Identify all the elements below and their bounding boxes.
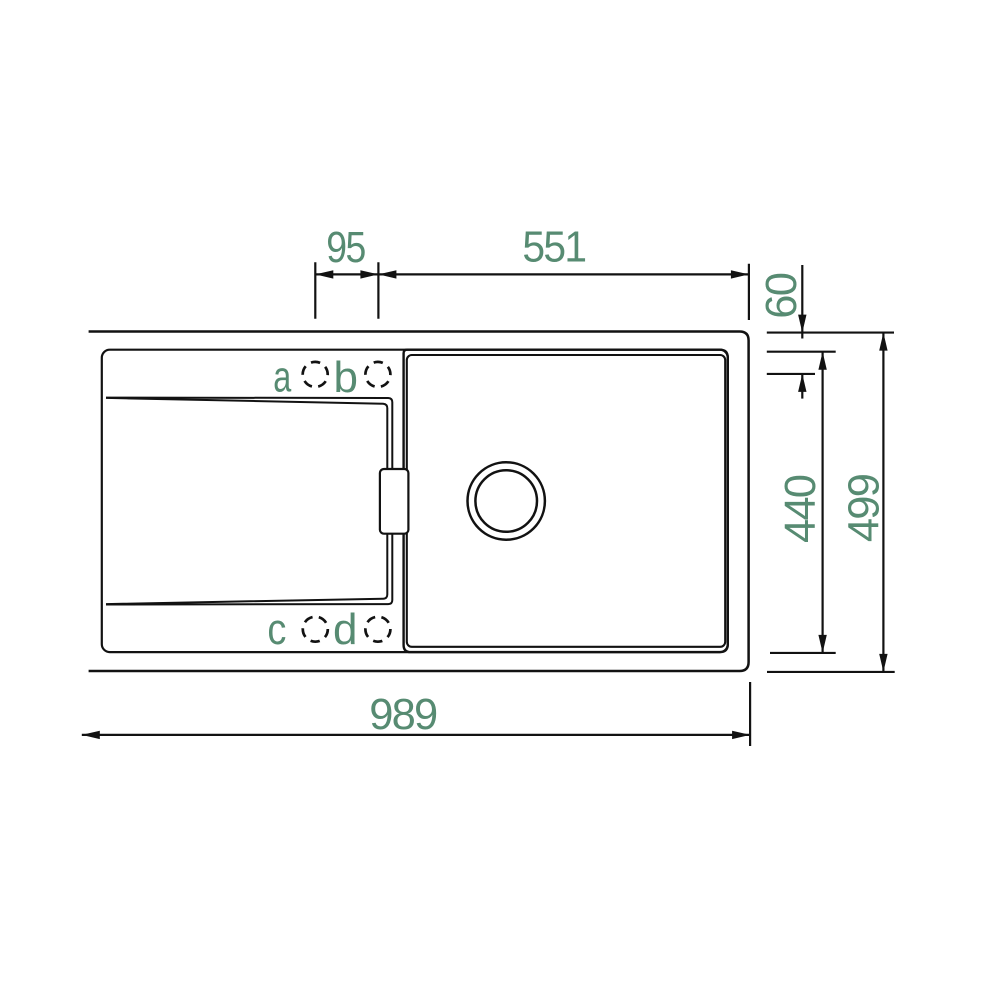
svg-text:989: 989	[369, 691, 437, 739]
svg-text:b: b	[333, 353, 357, 402]
svg-text:440: 440	[777, 475, 825, 543]
svg-text:499: 499	[840, 474, 888, 542]
svg-text:a: a	[273, 352, 291, 401]
svg-text:551: 551	[522, 224, 586, 272]
svg-text:95: 95	[326, 224, 365, 272]
svg-text:60: 60	[758, 273, 806, 318]
svg-text:c: c	[267, 605, 286, 654]
svg-text:d: d	[333, 605, 357, 654]
